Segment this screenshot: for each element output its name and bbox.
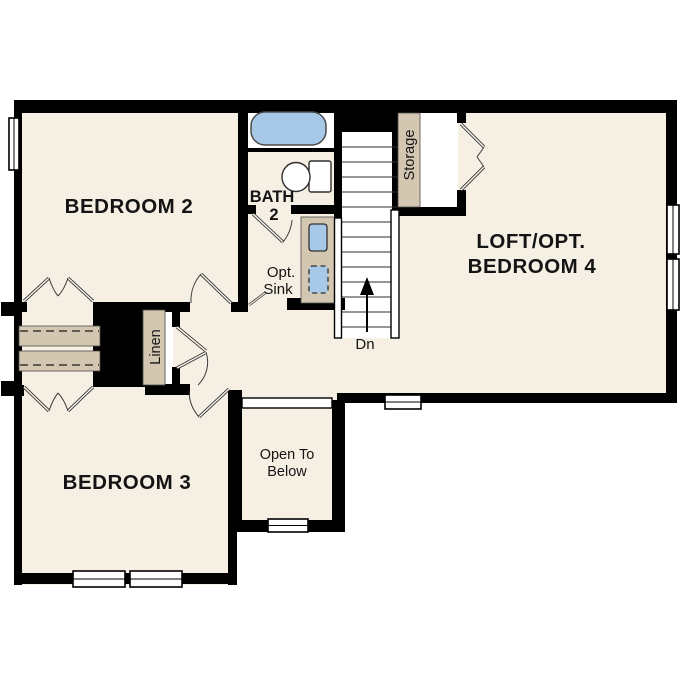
wall-stairs-top-bar <box>334 108 400 132</box>
wall-bath-west <box>238 113 248 307</box>
bedroom3-closet-shelf <box>19 351 100 371</box>
stair-direction-label: Dn <box>355 336 374 353</box>
toilet-tank <box>309 161 331 192</box>
vanity-sink <box>309 224 327 251</box>
otb-railing <box>242 398 332 408</box>
wall-storage-bottom <box>392 207 466 216</box>
bedroom3-label: BEDROOM 3 <box>63 471 192 494</box>
open-to-below-label-line1: Open To <box>260 447 315 463</box>
wall-ext-stub-upper <box>1 302 14 316</box>
wall-hall-bottom-left-stub <box>14 385 24 396</box>
linen-label: Linen <box>148 329 164 364</box>
vanity-optional-sink <box>309 266 328 293</box>
wall-tub-niche-bottom <box>246 148 334 152</box>
stairwell <box>342 128 398 338</box>
floor-plan: BEDROOM 2 BATH 2 Opt. Sink Storage Linen… <box>0 0 687 687</box>
wall-storage-stub-bottom <box>457 190 466 216</box>
wall-otb-left <box>228 390 242 532</box>
bedroom2-label: BEDROOM 2 <box>65 195 194 218</box>
wall-b2door-stub <box>231 302 248 312</box>
storage-interior <box>420 113 458 207</box>
wall-ext-stub-lower <box>1 381 14 396</box>
stair-railing-east <box>391 210 399 338</box>
opt-sink-label-line1: Opt. <box>267 264 295 281</box>
wall-hall-top-left-stub <box>14 302 27 312</box>
linen-interior <box>165 312 173 385</box>
bathtub <box>251 112 326 145</box>
wall-stairs-west <box>334 113 342 218</box>
wall-hall-bottom <box>145 384 190 395</box>
loft-label-line1: LOFT/OPT. <box>476 230 585 253</box>
stair-railing-west <box>335 218 342 338</box>
wall-otb-right <box>332 400 345 532</box>
loft-label-line2: BEDROOM 4 <box>468 255 597 278</box>
open-to-below-label-line2: Below <box>267 464 307 480</box>
bedroom2-closet-shelf <box>19 326 100 346</box>
wall-closet-core <box>93 302 145 387</box>
storage-label: Storage <box>402 130 418 181</box>
floor-plan-page: BEDROOM 2 BATH 2 Opt. Sink Storage Linen… <box>0 0 687 687</box>
opt-sink-label-line2: Sink <box>263 281 293 298</box>
wall-bath-divider <box>291 205 335 214</box>
wall-storage-stub-top <box>457 107 466 123</box>
bath2-label-line2: 2 <box>269 206 278 224</box>
bath2-label-line1: BATH <box>250 188 295 206</box>
wall-bath-divider-stub <box>248 205 256 214</box>
wall-linen-stub-top <box>172 310 180 327</box>
